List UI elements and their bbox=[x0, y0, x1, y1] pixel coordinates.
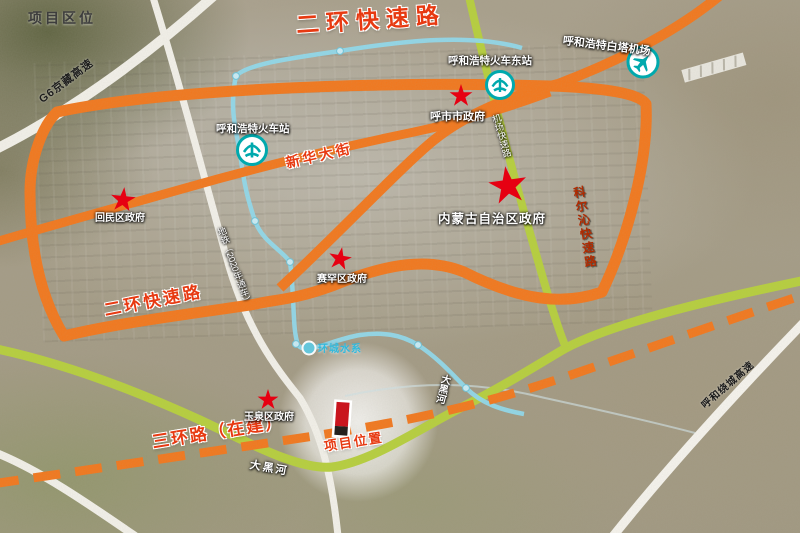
page-title: 项目区位 bbox=[28, 8, 96, 28]
poi-label-neimenggu-government: 内蒙古自治区政府 bbox=[438, 208, 546, 227]
project-location-map: 项目区位 二环快速路 二环快速路 新华大街 G6京藏高速 科尔沁快速路 三环路（… bbox=[0, 0, 800, 533]
poi-label-hushi-government: 呼市市政府 bbox=[430, 108, 485, 124]
poi-label-huimin-government: 回民区政府 bbox=[95, 209, 145, 224]
east-railway-station-icon bbox=[487, 72, 514, 99]
main-railway-station-icon bbox=[238, 136, 267, 165]
station-label-main-railway: 呼和浩特火车站 bbox=[216, 121, 290, 136]
water-label-ring-water: 环城水系 bbox=[318, 340, 362, 355]
map-layers bbox=[0, 0, 800, 533]
poi-label-saihan-government: 赛罕区政府 bbox=[317, 270, 367, 285]
station-label-east-railway: 呼和浩特火车东站 bbox=[448, 53, 532, 68]
poi-label-yuquan-government: 玉泉区政府 bbox=[244, 408, 294, 423]
noise-overlay bbox=[0, 0, 800, 533]
